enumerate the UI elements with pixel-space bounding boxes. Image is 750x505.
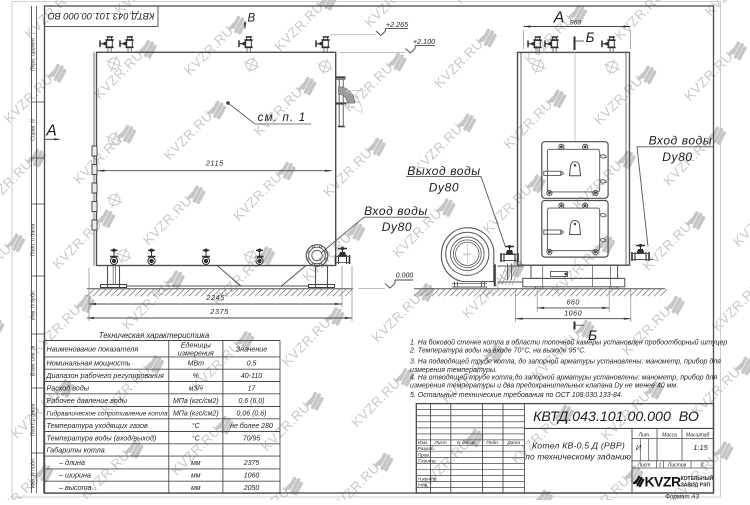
svg-text:Габариты котла: Габариты котла — [47, 446, 105, 455]
svg-text:Н.контр.: Н.контр. — [418, 477, 438, 483]
svg-text:Справ. N: Справ. N — [31, 119, 37, 141]
svg-text:Рабочее давление воды: Рабочее давление воды — [47, 396, 128, 405]
svg-text:КОТЕЛЬНЫЙ: КОТЕЛЬНЫЙ — [681, 474, 714, 482]
svg-text:Номинальная мощность: Номинальная мощность — [47, 359, 131, 368]
svg-text:Инв. N дубл.: Инв. N дубл. — [31, 290, 37, 320]
svg-text:Котел КВ-0,5 Д (РВР): Котел КВ-0,5 Д (РВР) — [532, 441, 625, 451]
svg-text:Dy80: Dy80 — [382, 220, 412, 234]
svg-text:Лист: Лист — [637, 463, 651, 469]
svg-text:Разраб.: Разраб. — [418, 446, 435, 452]
svg-text:Подп. и дата: Подп. и дата — [31, 404, 37, 437]
svg-text:Лист: Лист — [433, 440, 446, 446]
svg-text:Подп.: Подп. — [486, 440, 499, 446]
svg-text:%: % — [193, 373, 199, 380]
svg-text:по техническому заданию: по техническому заданию — [525, 452, 631, 462]
svg-text:В: В — [247, 13, 255, 25]
svg-text:– ширина: – ширина — [58, 471, 91, 480]
svg-text:2115: 2115 — [205, 159, 224, 168]
svg-text:И: И — [636, 443, 642, 452]
svg-text:Dy80: Dy80 — [429, 181, 459, 195]
svg-text:МПа (кгс/см2): МПа (кгс/см2) — [173, 410, 219, 417]
svg-text:2050: 2050 — [243, 485, 260, 492]
svg-text:Перв. примен.: Перв. примен. — [31, 37, 37, 71]
svg-text:0,06 (0,6): 0,06 (0,6) — [237, 410, 267, 417]
svg-text:1060: 1060 — [564, 308, 582, 317]
svg-text:– высота: – высота — [58, 483, 92, 492]
svg-text:м3/ч: м3/ч — [189, 385, 204, 392]
svg-text:1060: 1060 — [244, 473, 260, 480]
svg-text:70/95: 70/95 — [243, 435, 261, 442]
svg-text:А: А — [45, 122, 56, 139]
svg-text:960: 960 — [570, 19, 582, 26]
svg-text:4. На отводящей трубе котла,д: 4. На отводящей трубе котла,до запорной … — [410, 373, 717, 381]
svg-text:А: А — [553, 9, 565, 26]
svg-text:Масштаб: Масштаб — [686, 432, 710, 438]
svg-text:+2.100: +2.100 — [413, 37, 435, 46]
svg-text:0.000: 0.000 — [396, 273, 414, 280]
svg-text:Расход воды: Расход воды — [47, 383, 90, 392]
svg-text:Температура уходящих газов: Температура уходящих газов — [47, 421, 149, 430]
svg-text:Формат А3: Формат А3 — [665, 493, 699, 500]
svg-text:ЗАВОД РЭП: ЗАВОД РЭП — [681, 482, 711, 488]
svg-text:Лит.: Лит. — [638, 432, 651, 438]
svg-text:Dy80: Dy80 — [662, 150, 692, 164]
svg-text:17: 17 — [248, 385, 257, 392]
svg-text:0,5: 0,5 — [247, 361, 257, 368]
svg-text:Вход воды: Вход воды — [649, 134, 713, 148]
svg-text:40-110: 40-110 — [241, 373, 262, 380]
svg-text:МВт: МВт — [188, 361, 205, 368]
svg-text:Техническая характеристика: Техническая характеристика — [99, 331, 210, 340]
svg-text:2: 2 — [700, 463, 704, 469]
svg-text:– длина: – длина — [58, 458, 85, 467]
svg-text:Утв.: Утв. — [418, 482, 429, 488]
svg-text:Дата: Дата — [506, 440, 520, 446]
svg-text:1. На боковой стенке котла в: 1. На боковой стенке котла в области топ… — [410, 338, 727, 346]
svg-text:1: 1 — [659, 463, 662, 469]
svg-text:Пров.: Пров. — [418, 452, 431, 458]
svg-text:2375: 2375 — [209, 307, 229, 316]
svg-text:2. Температура воды на входе: 2. Температура воды на входе 70°С, на вы… — [409, 347, 586, 355]
svg-text:660: 660 — [566, 298, 580, 307]
svg-text:2245: 2245 — [205, 293, 225, 302]
svg-text:KVZR: KVZR — [644, 474, 681, 490]
svg-text:см. п. 1: см. п. 1 — [258, 112, 307, 124]
svg-text:измерения температуры.: измерения температуры. — [410, 367, 497, 374]
svg-text:Вход воды: Вход воды — [364, 204, 428, 218]
svg-text:Т.контр.: Т.контр. — [418, 458, 437, 464]
svg-text:Б: Б — [586, 30, 595, 45]
svg-text:КВТД.043.101.00.000 ВО: КВТД.043.101.00.000 ВО — [533, 409, 699, 425]
svg-text:не более 280: не более 280 — [230, 422, 273, 430]
svg-text:Изм.: Изм. — [418, 440, 428, 446]
svg-text:измерения: измерения — [178, 348, 214, 357]
svg-text:мм: мм — [191, 485, 201, 492]
svg-text:°С: °С — [192, 434, 201, 442]
svg-text:КВЗР: КВЗР — [463, 253, 472, 257]
svg-text:1:15: 1:15 — [693, 443, 708, 452]
svg-text:Температура воды (вход/выход): Температура воды (вход/выход) — [47, 433, 157, 442]
svg-text:измерения температуры и два пр: измерения температуры и два предохраните… — [410, 382, 678, 390]
svg-text:КВТД.043.101.00.000 ВО: КВТД.043.101.00.000 ВО — [47, 11, 155, 22]
svg-text:Значение: Значение — [236, 344, 268, 353]
svg-text:Гидравлическое сопротивление к: Гидравлическое сопротивление котла — [47, 409, 168, 417]
svg-text:МПа (кгс/см2): МПа (кгс/см2) — [173, 398, 219, 405]
svg-text:0,6 (6,0): 0,6 (6,0) — [238, 398, 264, 405]
svg-text:+2.265: +2.265 — [386, 20, 409, 29]
svg-text:Подп. и дата: Подп. и дата — [31, 224, 37, 257]
svg-text:Выход воды: Выход воды — [407, 164, 480, 178]
svg-text:3. На подводящей трубе котла,: 3. На подводящей трубе котла, до запорно… — [410, 358, 721, 366]
svg-text:°С: °С — [192, 422, 201, 430]
svg-text:Взам. инв. N: Взам. инв. N — [31, 346, 37, 376]
svg-text:Диапазон рабочего регулировани: Диапазон рабочего регулирования — [46, 371, 165, 380]
svg-text:Инв. N подл.: Инв. N подл. — [31, 458, 37, 488]
svg-text:N докум.: N докум. — [457, 440, 476, 446]
svg-text:5. Остальные технические треб: 5. Остальные технические требования по О… — [410, 391, 623, 399]
svg-text:мм: мм — [191, 460, 201, 467]
svg-text:2375: 2375 — [243, 460, 260, 467]
svg-text:Наименование показателя: Наименование показателя — [47, 344, 139, 353]
svg-text:мм: мм — [191, 473, 201, 480]
svg-text:Листов: Листов — [667, 463, 687, 469]
svg-text:Масса: Масса — [662, 432, 677, 438]
